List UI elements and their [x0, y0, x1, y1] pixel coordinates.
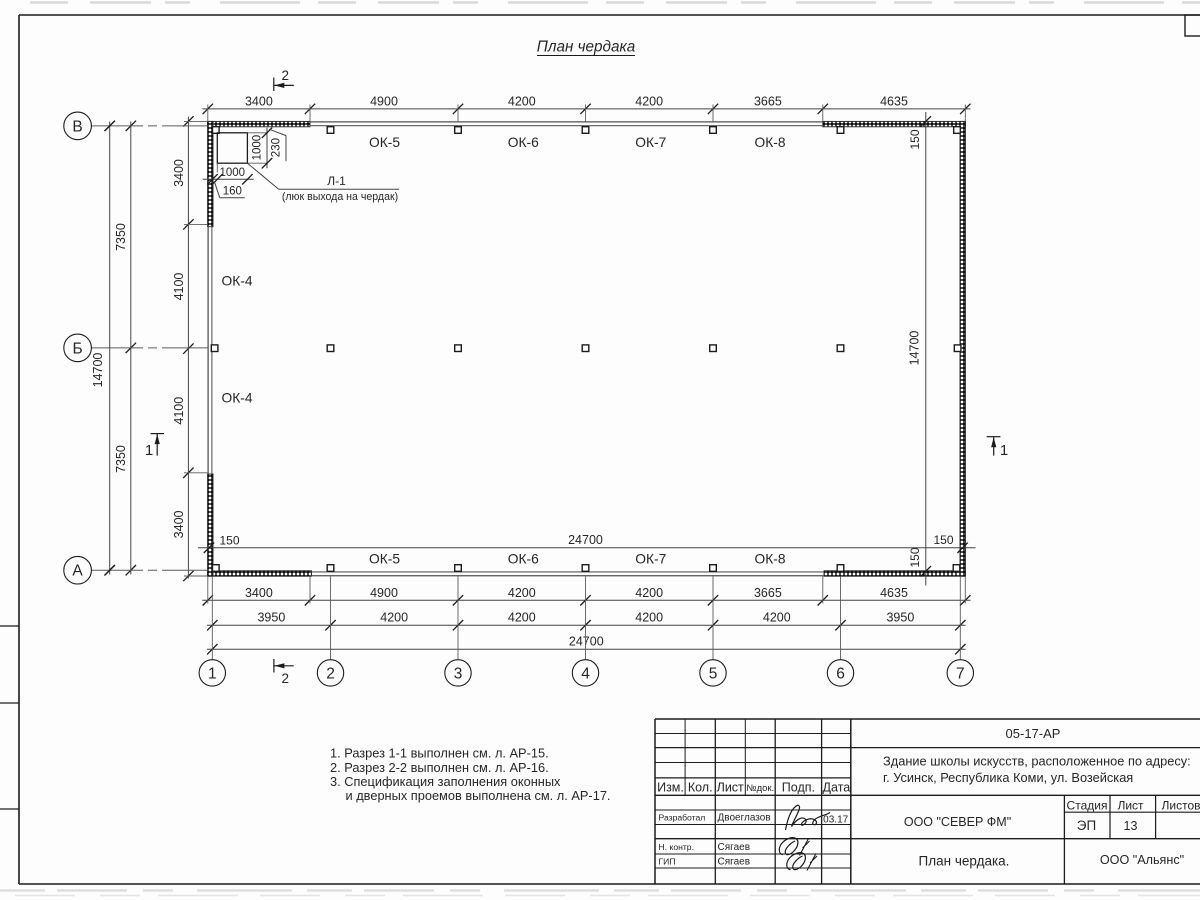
svg-text:(люк выхода на чердак): (люк выхода на чердак)	[282, 191, 398, 203]
svg-text:Л-1: Л-1	[327, 174, 346, 188]
svg-text:4900: 4900	[370, 94, 398, 108]
svg-text:03.17: 03.17	[823, 815, 848, 826]
svg-text:ООО "СЕВЕР ФМ": ООО "СЕВЕР ФМ"	[904, 815, 1011, 829]
svg-text:ОК-6: ОК-6	[508, 552, 539, 567]
svg-text:ОК-6: ОК-6	[508, 135, 539, 150]
svg-text:Листов: Листов	[1162, 799, 1200, 813]
svg-text:13: 13	[1124, 819, 1138, 833]
svg-text:4200: 4200	[763, 611, 791, 625]
svg-text:6: 6	[836, 665, 845, 682]
svg-text:ЭП: ЭП	[1077, 818, 1096, 833]
svg-text:4200: 4200	[380, 611, 408, 625]
svg-text:Изм.: Изм.	[657, 781, 684, 795]
svg-text:3400: 3400	[172, 159, 186, 187]
svg-text:Лист: Лист	[717, 781, 744, 795]
svg-text:План чердака: План чердака	[537, 39, 636, 56]
svg-text:2: 2	[326, 665, 335, 682]
svg-text:3950: 3950	[886, 611, 914, 625]
svg-text:№док.: №док.	[746, 783, 774, 794]
svg-text:ОК-7: ОК-7	[635, 552, 666, 567]
svg-text:ОК-5: ОК-5	[369, 552, 400, 567]
svg-text:150: 150	[933, 533, 953, 547]
svg-text:1: 1	[1000, 442, 1008, 459]
svg-text:150: 150	[908, 547, 922, 567]
svg-text:05-17-АР: 05-17-АР	[1006, 726, 1061, 741]
svg-text:7: 7	[956, 665, 965, 682]
svg-text:150: 150	[219, 533, 239, 547]
svg-text:и дверных проемов выполнена см: и дверных проемов выполнена см. л. АР-17…	[346, 788, 611, 803]
svg-text:150: 150	[908, 129, 922, 149]
svg-text:1. Разрез 1-1 выполнен см. л.: 1. Разрез 1-1 выполнен см. л. АР-15.	[330, 746, 549, 761]
svg-text:4200: 4200	[635, 586, 663, 600]
svg-text:ОК-4: ОК-4	[221, 391, 252, 406]
svg-text:Здание школы искусств, располо: Здание школы искусств, расположенное по …	[883, 754, 1191, 769]
svg-text:4635: 4635	[880, 94, 908, 108]
svg-text:2: 2	[281, 671, 289, 686]
svg-text:4200: 4200	[635, 94, 663, 108]
svg-text:ОК-7: ОК-7	[635, 135, 666, 150]
svg-text:1000: 1000	[220, 167, 246, 179]
svg-text:План чердака.: План чердака.	[919, 854, 1010, 869]
svg-text:Подп.: Подп.	[782, 781, 815, 795]
svg-text:4635: 4635	[880, 586, 908, 600]
svg-text:Двоеглазов: Двоеглазов	[718, 813, 771, 824]
svg-text:1: 1	[208, 665, 217, 682]
svg-text:Н. контр.: Н. контр.	[659, 842, 694, 852]
svg-text:3400: 3400	[172, 510, 186, 538]
svg-text:4200: 4200	[508, 611, 536, 625]
svg-text:1: 1	[145, 442, 153, 459]
svg-text:4100: 4100	[172, 397, 186, 425]
svg-text:3400: 3400	[245, 586, 273, 600]
svg-text:А: А	[72, 563, 83, 580]
svg-text:ГИП: ГИП	[659, 856, 676, 866]
svg-text:3400: 3400	[245, 94, 273, 108]
svg-text:Б: Б	[73, 340, 83, 357]
svg-text:24700: 24700	[568, 533, 603, 547]
svg-text:3665: 3665	[754, 586, 782, 600]
svg-text:Лист: Лист	[1117, 799, 1144, 813]
svg-text:Сягаев: Сягаев	[718, 842, 751, 853]
svg-text:4200: 4200	[635, 611, 663, 625]
svg-text:Стадия: Стадия	[1067, 799, 1108, 813]
svg-text:2. Разрез 2-2 выполнен см. л.: 2. Разрез 2-2 выполнен см. л. АР-16.	[330, 760, 549, 775]
svg-text:3: 3	[454, 665, 463, 682]
svg-text:3950: 3950	[257, 611, 285, 625]
svg-text:4: 4	[581, 665, 590, 682]
svg-text:В: В	[72, 118, 82, 135]
svg-text:ООО "Альянс": ООО "Альянс"	[1100, 853, 1184, 867]
svg-text:г. Усинск, Республика Коми, ул: г. Усинск, Республика Коми, ул. Возейска…	[883, 770, 1133, 785]
svg-text:4200: 4200	[508, 94, 536, 108]
svg-text:1000: 1000	[251, 135, 263, 161]
svg-text:4100: 4100	[172, 273, 186, 301]
svg-text:ОК-4: ОК-4	[221, 274, 252, 289]
svg-text:Дата: Дата	[823, 781, 851, 795]
svg-text:3665: 3665	[754, 94, 782, 108]
svg-text:5: 5	[709, 665, 718, 682]
svg-text:Кол.: Кол.	[688, 781, 713, 795]
svg-text:3. Спецификация заполнения око: 3. Спецификация заполнения оконных	[330, 774, 561, 789]
svg-text:ОК-5: ОК-5	[369, 135, 400, 150]
svg-text:ОК-8: ОК-8	[754, 552, 785, 567]
svg-text:230: 230	[271, 138, 283, 157]
svg-text:4900: 4900	[370, 586, 398, 600]
svg-text:14700: 14700	[908, 331, 922, 366]
svg-text:7350: 7350	[114, 445, 128, 473]
svg-text:24700: 24700	[569, 635, 604, 649]
svg-text:ОК-8: ОК-8	[754, 135, 785, 150]
svg-text:14700: 14700	[91, 353, 105, 388]
svg-text:2: 2	[281, 68, 289, 83]
svg-text:7350: 7350	[114, 223, 128, 251]
svg-text:4200: 4200	[508, 586, 536, 600]
svg-text:Сягаев: Сягаев	[718, 856, 751, 867]
svg-text:Разработал: Разработал	[659, 813, 706, 823]
svg-text:160: 160	[223, 186, 242, 198]
